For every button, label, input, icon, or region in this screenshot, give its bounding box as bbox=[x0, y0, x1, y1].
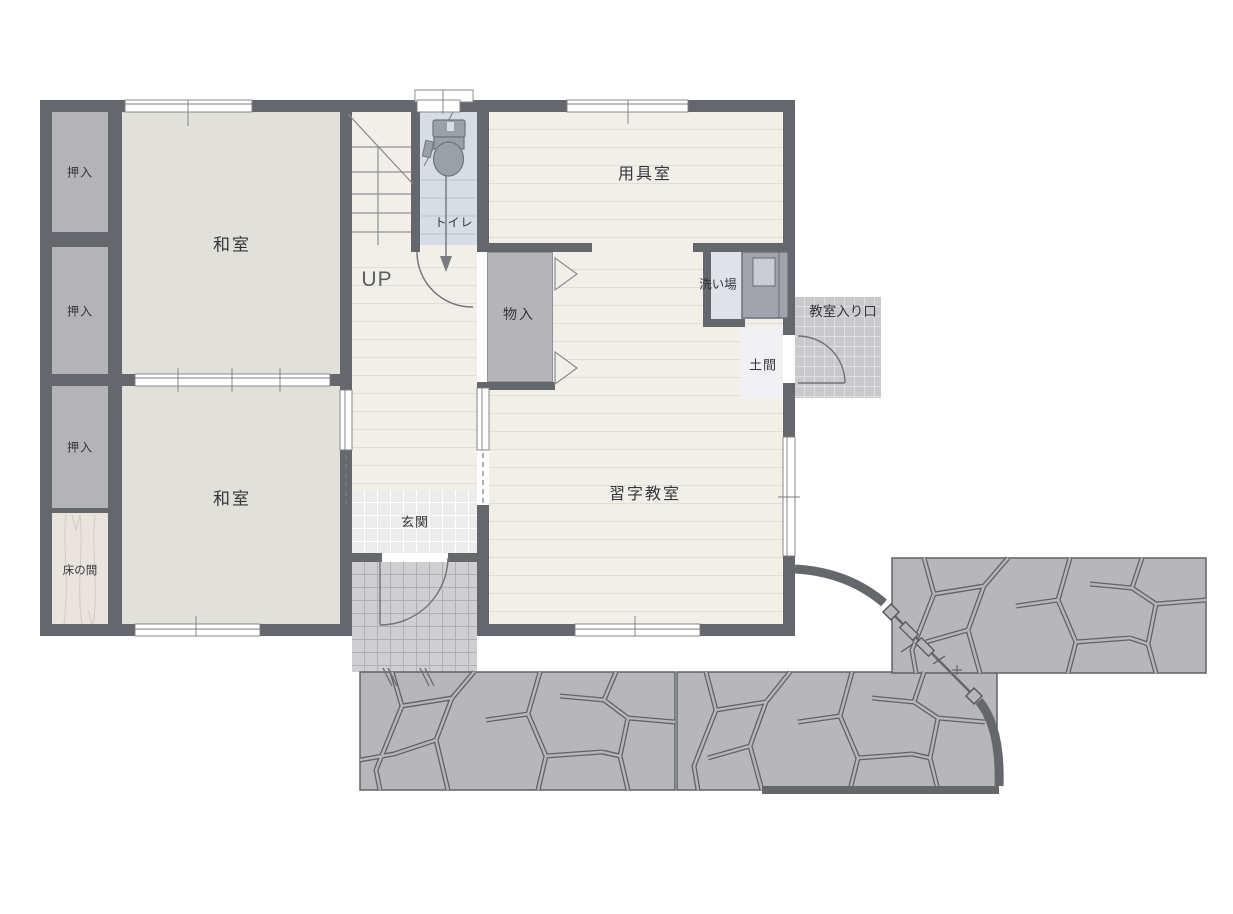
label-yogushitsu: 用具室 bbox=[618, 160, 672, 184]
stone-path-bottom-left bbox=[360, 672, 675, 790]
label-oshiire-3: 押入 bbox=[67, 439, 93, 456]
wall-toilet-left bbox=[411, 100, 420, 252]
wall-bottom-left bbox=[40, 624, 347, 636]
wall-genkan-door-right-stub bbox=[448, 553, 489, 562]
label-stairs-up: UP bbox=[361, 268, 392, 292]
label-washitsu-lower: 和室 bbox=[213, 485, 251, 510]
garden-gate bbox=[883, 604, 982, 704]
wall-genkan-door-left-stub bbox=[340, 553, 382, 562]
wall-left bbox=[40, 100, 52, 636]
label-araiba: 洗い場 bbox=[699, 274, 737, 293]
wall-toilet-right bbox=[477, 100, 489, 252]
garden-fence bbox=[762, 569, 999, 794]
label-toilet: トイレ bbox=[434, 214, 473, 231]
label-oshiire-2: 押入 bbox=[67, 303, 93, 320]
wall-yogu-bottom-right bbox=[693, 243, 783, 252]
stone-path-bottom-right bbox=[677, 672, 997, 790]
opening-strip bbox=[592, 243, 693, 252]
wall-araiba-bottom bbox=[703, 319, 745, 327]
label-washitsu-upper: 和室 bbox=[213, 231, 251, 256]
label-doma: 土間 bbox=[749, 355, 777, 374]
label-kyoshitsu-iriguchi: 教室入り口 bbox=[809, 300, 877, 320]
label-tokonoma: 床の間 bbox=[63, 562, 98, 578]
label-shuji-kyoshitsu: 習字教室 bbox=[609, 480, 681, 504]
label-genkan: 玄関 bbox=[401, 512, 429, 531]
wall-yogu-bottom-left bbox=[489, 243, 592, 252]
genkan-porch bbox=[352, 562, 477, 672]
wall-monoire-bottom bbox=[477, 382, 555, 390]
entry-door-opening bbox=[783, 335, 795, 383]
label-monoire: 物入 bbox=[503, 304, 535, 324]
stone-path-right bbox=[892, 558, 1206, 673]
wall-bottom-right bbox=[477, 624, 795, 636]
wall-genkan-right bbox=[477, 505, 489, 636]
label-oshiire-1: 押入 bbox=[67, 164, 93, 181]
wall-middle bbox=[40, 374, 352, 386]
floor-plan: 押入 押入 押入 床の間 和室 和室 トイレ UP 用具室 物入 洗い場 土間 … bbox=[0, 0, 1233, 914]
